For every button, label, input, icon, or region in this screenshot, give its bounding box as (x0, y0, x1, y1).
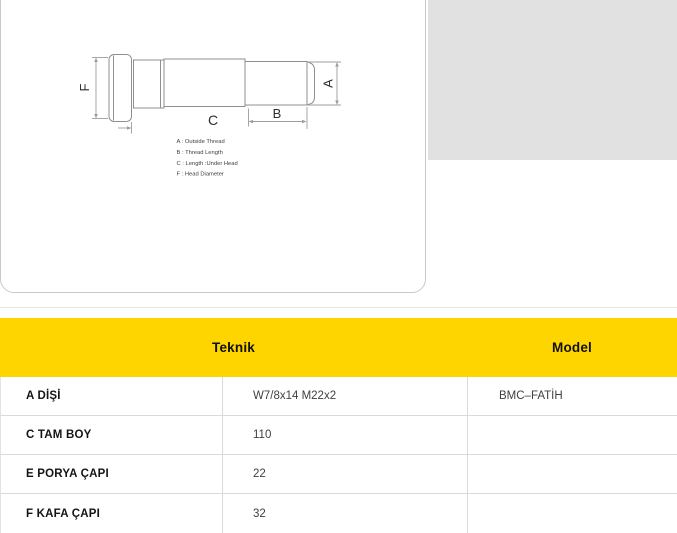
table-row: F KAFA ÇAPI 32 (0, 494, 677, 533)
legend-line-a: A : Outside Thread (177, 139, 225, 145)
row-model-value (468, 416, 677, 454)
table-header-teknik: Teknik (0, 318, 467, 377)
row-value: W7/8x14 M22x2 (223, 377, 468, 415)
bolt-tip-chamfer (307, 62, 315, 106)
bolt-head (109, 55, 132, 122)
section-divider (0, 307, 677, 308)
dim-label-a: A (321, 79, 336, 88)
bolt-thread-section (245, 62, 307, 106)
row-value: 110 (223, 416, 468, 454)
row-model-value: BMC–FATİH (468, 377, 677, 415)
dim-label-b: B (273, 106, 282, 121)
legend-line-b: B : Thread Length (177, 150, 223, 156)
spec-table: Teknik Model A DİŞİ W7/8x14 M22x2 BMC–FA… (0, 318, 677, 533)
row-value: 22 (223, 455, 468, 493)
table-row: C TAM BOY 110 (0, 416, 677, 455)
dimension-a: A (307, 62, 341, 105)
table-row: E PORYA ÇAPI 22 (0, 455, 677, 494)
row-label: A DİŞİ (1, 377, 223, 415)
table-row: A DİŞİ W7/8x14 M22x2 BMC–FATİH (0, 377, 677, 416)
table-header-model: Model (467, 318, 677, 377)
row-label: F KAFA ÇAPI (1, 494, 223, 533)
dimension-f: F (77, 58, 108, 119)
row-model-value (468, 494, 677, 533)
row-label: C TAM BOY (1, 416, 223, 454)
dimension-b: B (249, 106, 308, 129)
spec-table-header: Teknik Model (0, 318, 677, 377)
legend-line-c: C : Length :Under Head (177, 161, 238, 167)
row-value: 32 (223, 494, 468, 533)
dimension-c: C (118, 112, 218, 134)
product-image-placeholder (428, 0, 677, 160)
legend-line-f: F : Head Diameter (177, 172, 224, 178)
row-model-value (468, 455, 677, 493)
bolt-shank (164, 59, 245, 107)
bolt-technical-drawing: F A B C A : Outside Thread B : Thread Le… (0, 0, 430, 300)
diagram-legend: A : Outside Thread B : Thread Length C :… (177, 139, 238, 177)
bolt-collar (134, 60, 165, 108)
row-label: E PORYA ÇAPI (1, 455, 223, 493)
dim-label-f: F (77, 83, 92, 91)
dim-label-c: C (208, 112, 218, 128)
